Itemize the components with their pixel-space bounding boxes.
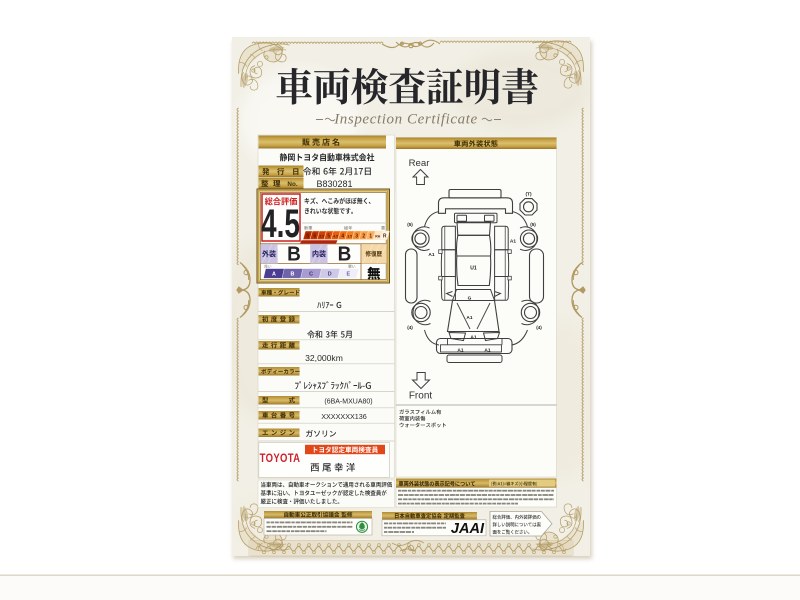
svg-text:B: B — [338, 243, 352, 266]
svg-text:4.5: 4.5 — [333, 234, 338, 238]
svg-text:Inspection Certificate: Inspection Certificate — [333, 112, 478, 128]
svg-text:32,000km: 32,000km — [305, 353, 343, 363]
svg-text:6: 6 — [313, 233, 316, 239]
svg-text:5.5: 5.5 — [319, 234, 324, 238]
svg-text:B830281: B830281 — [316, 179, 352, 189]
svg-text:A1: A1 — [484, 348, 490, 354]
svg-text:E: E — [346, 271, 350, 277]
svg-text:B: B — [291, 271, 295, 277]
svg-text:A1: A1 — [428, 252, 434, 258]
svg-text:(5): (5) — [530, 222, 536, 227]
svg-text:(4): (4) — [407, 325, 413, 330]
svg-text:(4): (4) — [536, 325, 542, 330]
svg-text:A1: A1 — [470, 335, 476, 341]
svg-text:D: D — [328, 271, 332, 277]
svg-text:(6BA-MXUA80): (6BA-MXUA80) — [324, 398, 372, 405]
svg-text:A: A — [272, 271, 276, 277]
svg-text:No.: No. — [287, 181, 297, 188]
svg-text:R: R — [383, 233, 387, 239]
svg-text:U1: U1 — [470, 266, 477, 272]
svg-text:Front: Front — [409, 391, 433, 402]
svg-text:A1: A1 — [457, 348, 463, 354]
svg-text:Rear: Rear — [409, 158, 431, 169]
svg-text:TOYOTA: TOYOTA — [260, 452, 301, 465]
svg-text:A1: A1 — [510, 239, 516, 245]
svg-text:3.5: 3.5 — [347, 234, 352, 238]
svg-text:A1: A1 — [466, 315, 472, 321]
svg-text:JAAI: JAAI — [451, 521, 485, 537]
svg-text:4.5: 4.5 — [261, 202, 300, 246]
svg-text:RA: RA — [375, 234, 380, 238]
svg-text:(T): (T) — [525, 192, 532, 198]
svg-text:2: 2 — [362, 233, 365, 239]
svg-text:C: C — [309, 271, 313, 277]
svg-text:1: 1 — [369, 233, 372, 239]
svg-text:5: 5 — [327, 233, 330, 239]
svg-text:(5): (5) — [407, 222, 413, 227]
svg-text:3: 3 — [355, 233, 358, 239]
svg-text:B: B — [287, 243, 301, 266]
svg-text:4: 4 — [341, 233, 344, 239]
svg-text:XXXXXXX136: XXXXXXX136 — [321, 412, 367, 421]
svg-text:S: S — [306, 233, 310, 239]
